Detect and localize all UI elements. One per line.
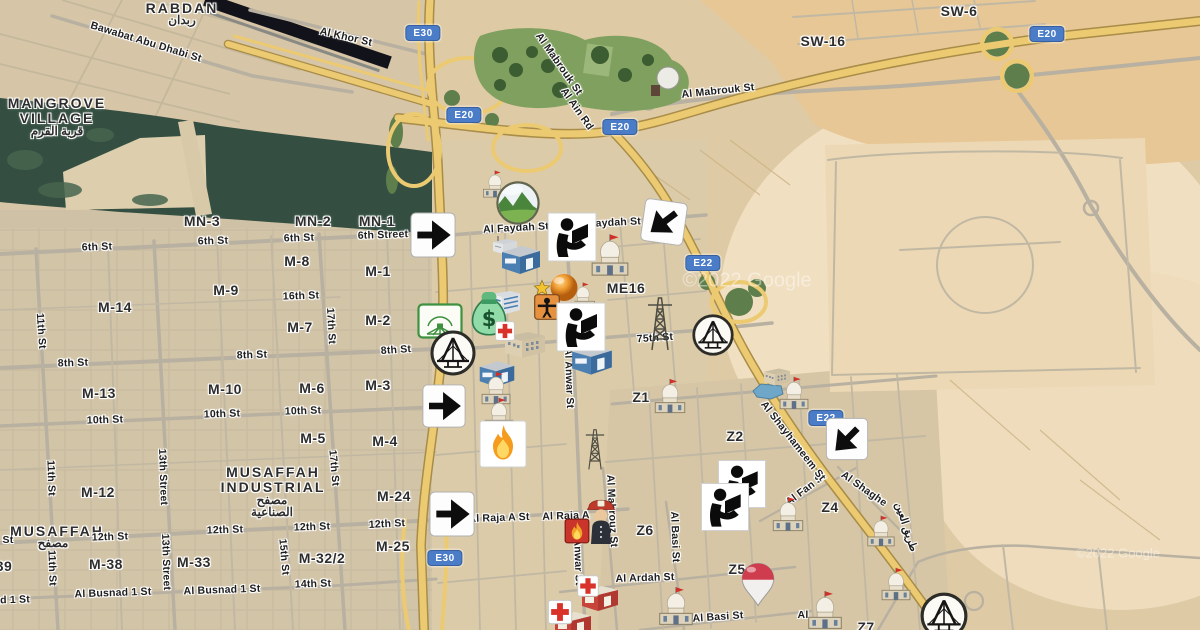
street-label: 13th Street [159,534,173,591]
street-label: Al Shaghe [839,469,889,509]
mosque-icon[interactable] [655,585,697,627]
street-label: 15th St [276,538,291,575]
street-label: Al Basi St [692,609,744,625]
hospital-cross-icon[interactable] [577,575,599,597]
landscape-globe-icon[interactable] [496,181,540,225]
mosque-icon[interactable] [769,495,807,533]
street-label: 10th St [285,404,322,417]
district-label: M-10 [208,381,242,397]
map-overlay: RABDANربدانMANGROVEVILLAGEقرية القرمMUSA… [0,0,1200,630]
street-label: Al Busnad 1 St [74,586,151,601]
street-label: 12th St [207,523,244,536]
street-label: Al Basi St [668,511,682,562]
mosque-icon[interactable] [651,377,689,415]
district-label: Z1 [632,389,649,405]
street-label: St [3,534,14,546]
street-label: 10th St [87,413,124,426]
street-label: 6th St [198,234,229,247]
google-watermark: ©2022 Google [682,270,811,293]
street-label: Al Busnad 1 St [183,583,260,598]
district-label: M-25 [376,538,410,554]
district-label: M-7 [287,319,313,335]
district-label: M-4 [372,433,398,449]
district-label: M-5 [300,430,326,446]
warehouse-icon[interactable] [499,243,543,277]
street-label: 11th St [44,460,57,496]
mosque-icon[interactable] [776,375,812,411]
library-icon[interactable] [701,483,750,532]
district-label: M-14 [98,299,132,315]
library-icon[interactable] [556,302,606,352]
street-label: 11th St [34,313,48,350]
turn-right-arrow-icon[interactable] [410,212,457,259]
bridge-icon[interactable] [919,591,969,630]
street-label: 17th St [324,308,338,345]
street-label: 13th Street [156,449,170,506]
route-shield: E30 [427,550,462,566]
hospital-cross-icon[interactable] [495,321,515,341]
mosque-icon[interactable] [864,514,898,548]
street-label: Al Mabrouk St [681,81,755,101]
district-label: Z6 [636,522,653,538]
turn-right-arrow-icon[interactable] [422,384,467,429]
route-shield: E20 [602,119,637,135]
power-pylon-icon [582,425,608,471]
area-label: مصفح [38,536,69,550]
street-label: 6th St [284,231,315,244]
district-label: ME16 [607,280,646,296]
route-shield: E20 [1029,26,1064,42]
district-label: M-38 [89,556,123,572]
district-label: Z7 [857,619,874,630]
street-label: 6th Street [358,228,409,242]
street-label: 8th St [380,343,411,357]
district-label: M-9 [213,282,239,298]
bridge-icon[interactable] [429,329,477,377]
area-label: MANGROVE [8,95,106,111]
district-label: SW-6 [941,3,978,19]
satellite-map-canvas[interactable]: RABDANربدانMANGROVEVILLAGEقرية القرمMUSA… [0,0,1200,630]
area-label: MUSAFFAH [226,464,320,480]
mosque-icon[interactable] [804,589,846,630]
district-label: M-13 [82,385,116,401]
street-label: 10th St [204,407,241,420]
district-label: M-12 [81,484,115,500]
turn-right-arrow-icon[interactable] [429,491,476,538]
district-label: M-6 [299,380,325,396]
district-label: Z2 [726,428,743,444]
street-label: 14th St [295,577,332,590]
power-pylon-icon [643,292,677,352]
district-label: M-8 [284,253,310,269]
district-label: Z4 [821,499,838,515]
google-watermark: ©2022 Google [1076,546,1160,561]
district-label: MN-2 [295,213,331,229]
district-label: M-1 [365,263,391,279]
flag-pin-icon[interactable] [739,562,777,608]
turn-down-left-arrow-icon[interactable] [825,417,869,461]
district-label: M-24 [377,488,411,504]
area-label: الصناعية [251,505,293,519]
fire-icon[interactable] [479,420,527,468]
street-label: 8th St [58,356,89,369]
street-label: 12th St [369,517,406,531]
street-label: Al Mabrouk St [533,31,585,98]
area-label: ربدان [168,13,196,27]
turn-down-left-arrow-icon[interactable] [639,197,690,248]
district-label: MN-1 [359,213,395,229]
street-label: 6th St [82,240,113,253]
district-label: M-2 [365,312,391,328]
fireman-icon[interactable] [585,494,617,544]
street-label: Al Khor St [319,25,374,49]
mosque-icon[interactable] [878,566,914,602]
street-label: 12th St [92,530,129,543]
library-icon[interactable] [547,212,597,262]
bridge-icon[interactable] [691,313,735,357]
street-label: 11th St [45,550,58,586]
hospital-cross-icon[interactable] [548,600,573,625]
district-label: M-32/2 [299,550,346,566]
street-label: ad 1 St [0,593,30,606]
district-label: MN-3 [184,213,220,229]
district-label: M-33 [177,554,211,570]
street-label: Al Raja A St [468,511,530,525]
street-label: 8th St [237,348,268,361]
district-label: M-3 [365,377,391,393]
street-label: Al Ardah St [615,571,674,585]
district-label: SW-16 [800,33,845,49]
street-label: 17th St [326,449,341,486]
district-label: 39 [0,558,12,574]
street-label: 12th St [294,520,331,533]
street-label: 16th St [283,289,320,302]
area-label: قرية القرم [31,124,84,138]
route-shield: E30 [405,25,440,41]
route-shield: E20 [446,107,481,123]
